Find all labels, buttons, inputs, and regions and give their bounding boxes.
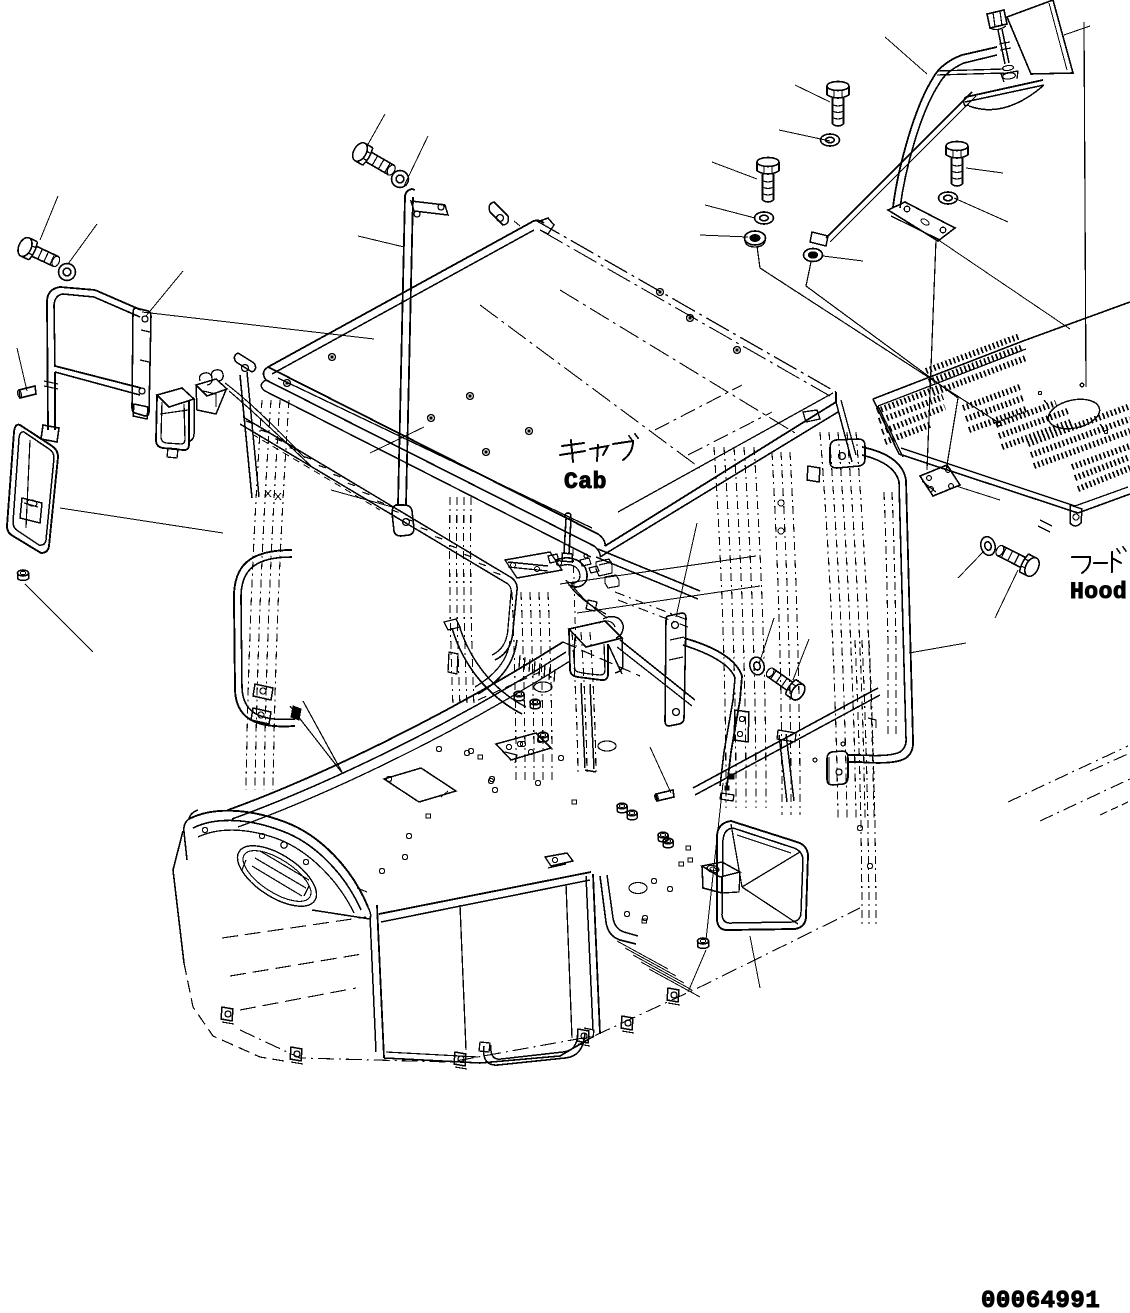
svg-text:00064991: 00064991 [981, 1288, 1100, 1313]
svg-text:Cab: Cab [564, 469, 607, 495]
svg-text:Hood: Hood [1070, 579, 1127, 605]
